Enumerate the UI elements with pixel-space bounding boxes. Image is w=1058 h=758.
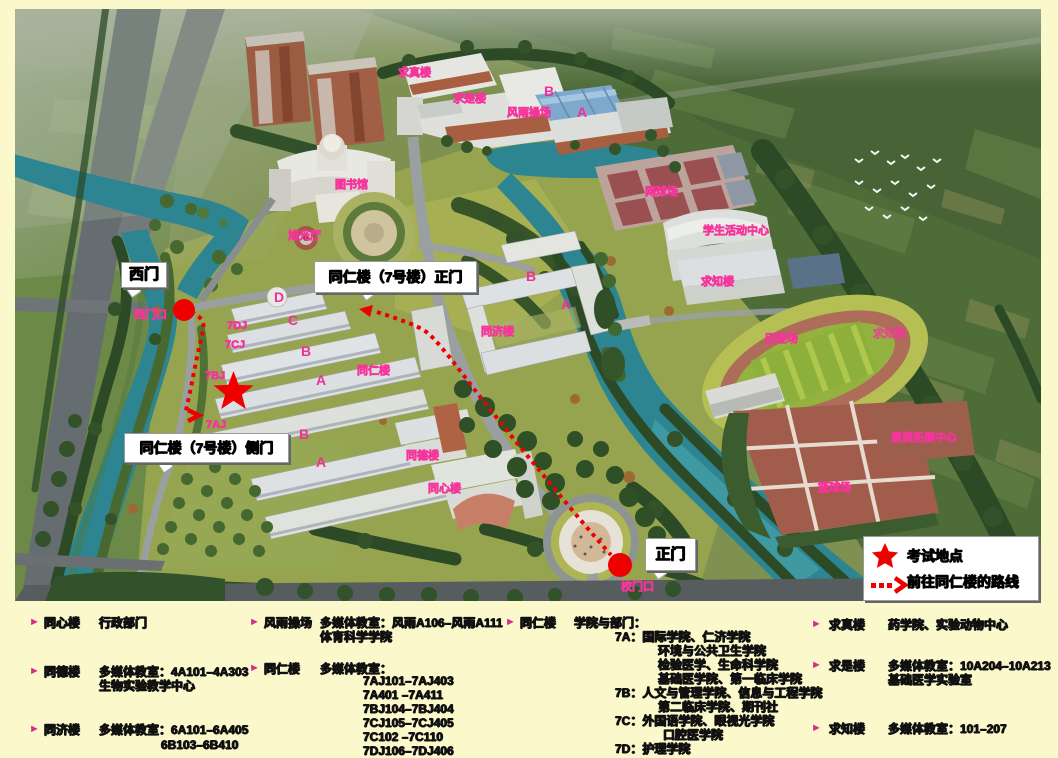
svg-text:素质拓展中心: 素质拓展中心 bbox=[891, 430, 957, 444]
svg-text:B: B bbox=[299, 426, 309, 442]
svg-text:7DJ: 7DJ bbox=[227, 320, 247, 332]
svg-text:前往同仁楼的路线: 前往同仁楼的路线 bbox=[907, 574, 1019, 590]
svg-text:D: D bbox=[274, 289, 284, 305]
svg-text:同德楼: 同德楼 bbox=[406, 448, 439, 462]
svg-text:A: A bbox=[316, 454, 326, 470]
svg-text:学生活动中心: 学生活动中心 bbox=[703, 223, 769, 237]
svg-text:校门口: 校门口 bbox=[621, 579, 654, 593]
svg-text:同心楼: 同心楼 bbox=[428, 481, 461, 495]
svg-text:旭光厅: 旭光厅 bbox=[287, 228, 321, 242]
svg-text:B: B bbox=[301, 343, 311, 359]
svg-text:求真楼: 求真楼 bbox=[398, 65, 431, 79]
svg-text:考试地点: 考试地点 bbox=[907, 548, 963, 564]
svg-text:7AJ: 7AJ bbox=[206, 419, 226, 431]
svg-text:A: A bbox=[316, 372, 326, 388]
svg-text:篮球场: 篮球场 bbox=[817, 480, 851, 494]
svg-text:田径场: 田径场 bbox=[765, 331, 798, 345]
svg-text:C: C bbox=[288, 312, 298, 328]
svg-text:7CJ: 7CJ bbox=[225, 339, 245, 351]
svg-text:A: A bbox=[561, 296, 571, 312]
svg-text:网球场: 网球场 bbox=[645, 184, 678, 198]
svg-text:求知楼: 求知楼 bbox=[873, 326, 906, 340]
svg-text:图书馆: 图书馆 bbox=[335, 177, 368, 191]
svg-text:西门口: 西门口 bbox=[134, 307, 167, 321]
svg-text:风雨操场: 风雨操场 bbox=[507, 105, 551, 119]
svg-text:求知楼: 求知楼 bbox=[701, 274, 734, 288]
svg-text:求是楼: 求是楼 bbox=[453, 91, 486, 105]
svg-text:同济楼: 同济楼 bbox=[481, 324, 514, 338]
svg-text:B: B bbox=[544, 83, 554, 99]
svg-text:B: B bbox=[526, 268, 536, 284]
svg-text:同仁楼: 同仁楼 bbox=[357, 363, 390, 377]
svg-text:A: A bbox=[577, 104, 587, 120]
svg-text:7BJ: 7BJ bbox=[205, 370, 225, 382]
